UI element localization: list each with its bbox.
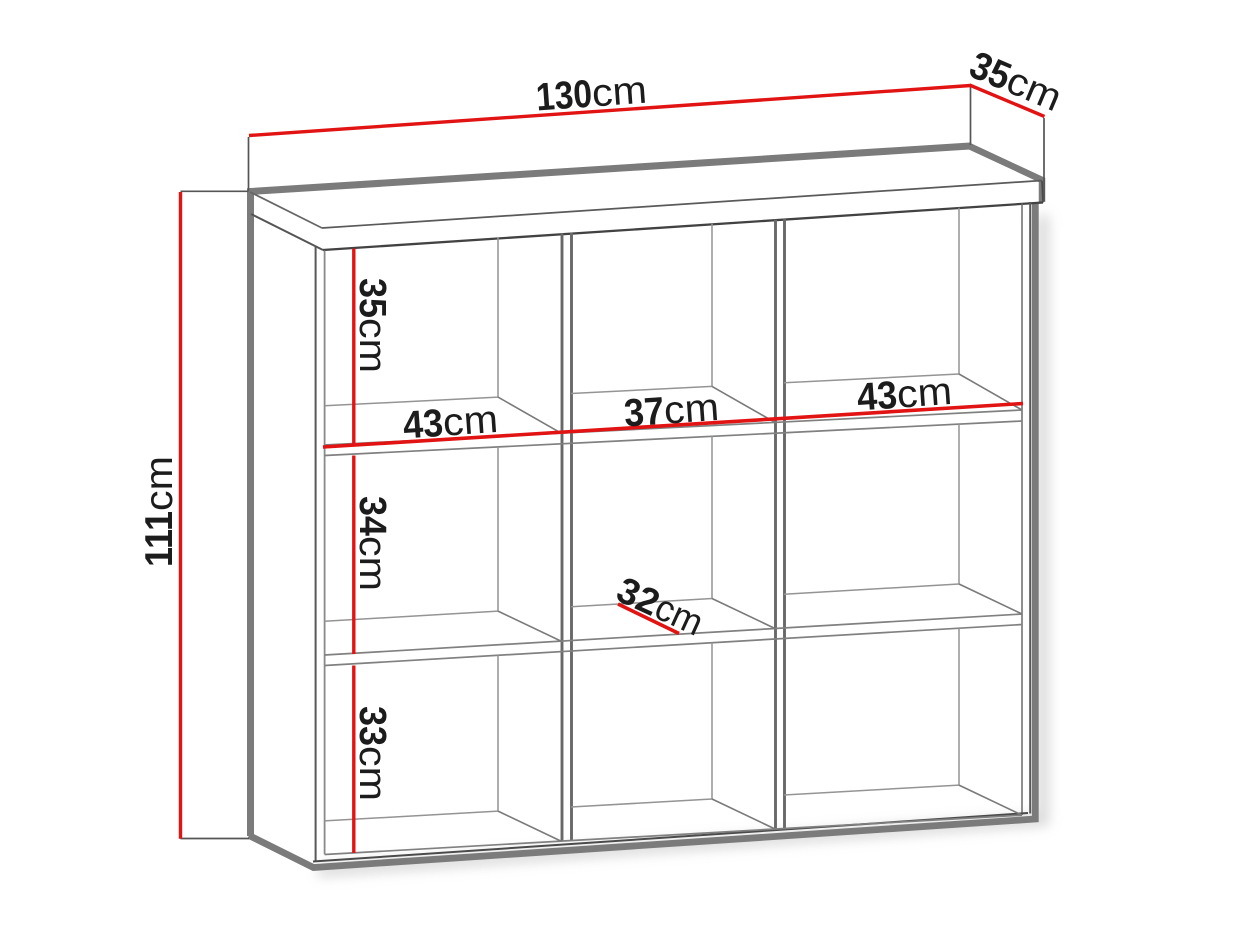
svg-text:35cm: 35cm xyxy=(351,278,393,373)
svg-text:43cm: 43cm xyxy=(402,398,500,448)
svg-text:43cm: 43cm xyxy=(856,370,954,420)
svg-text:130cm: 130cm xyxy=(535,69,649,120)
svg-text:37cm: 37cm xyxy=(623,386,721,436)
svg-text:111cm: 111cm xyxy=(138,456,181,567)
svg-text:34cm: 34cm xyxy=(351,496,393,591)
svg-text:33cm: 33cm xyxy=(351,706,393,801)
